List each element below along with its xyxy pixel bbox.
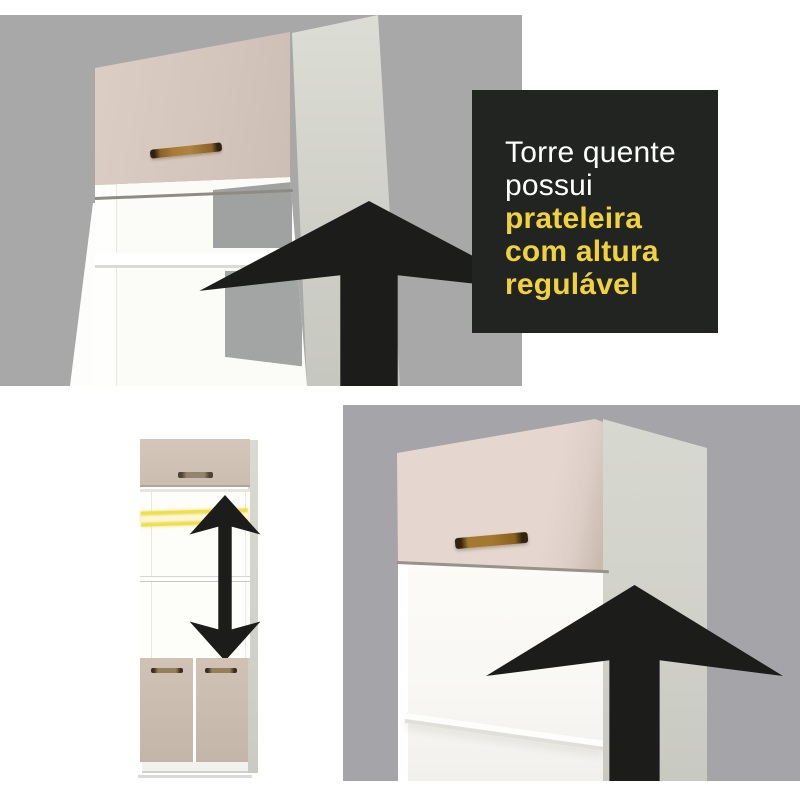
height-adjustable-arrow-icon (170, 495, 280, 661)
lower-door-left (140, 658, 193, 762)
photo-upper-cabinet-detail (0, 15, 522, 386)
feature-callout: Torre quente possui prateleira com altur… (472, 90, 718, 333)
callout-line-5-highlight: regulável (505, 268, 708, 301)
callout-line-2: possui (505, 169, 708, 202)
lower-door-left-handle (151, 668, 183, 673)
lower-door-right-handle (205, 668, 237, 673)
callout-line-3-highlight: prateleira (505, 202, 708, 235)
tower-upper-door (140, 439, 250, 487)
lower-door-right (196, 658, 248, 762)
tower-floor-shadow (138, 775, 252, 778)
tower-lower-doors (140, 658, 248, 762)
upper-door (95, 32, 290, 185)
callout-line-4-highlight: com altura (505, 235, 708, 268)
tower-open-compartment (140, 489, 250, 658)
upper-door-handle (150, 142, 223, 158)
tower-base-plinth (142, 762, 248, 773)
photo-oven-niche-detail (343, 405, 800, 781)
height-adjustable-arrow-icon (406, 585, 800, 781)
upper-door (397, 418, 603, 573)
photo-full-tower-cabinet (125, 430, 295, 790)
product-feature-image: Torre quente possui prateleira com altur… (0, 0, 800, 800)
tower-upper-door-handle (178, 472, 213, 478)
callout-line-1: Torre quente (505, 136, 708, 169)
height-adjustable-arrow-icon (108, 201, 522, 386)
cabinet-left-side (70, 203, 97, 386)
